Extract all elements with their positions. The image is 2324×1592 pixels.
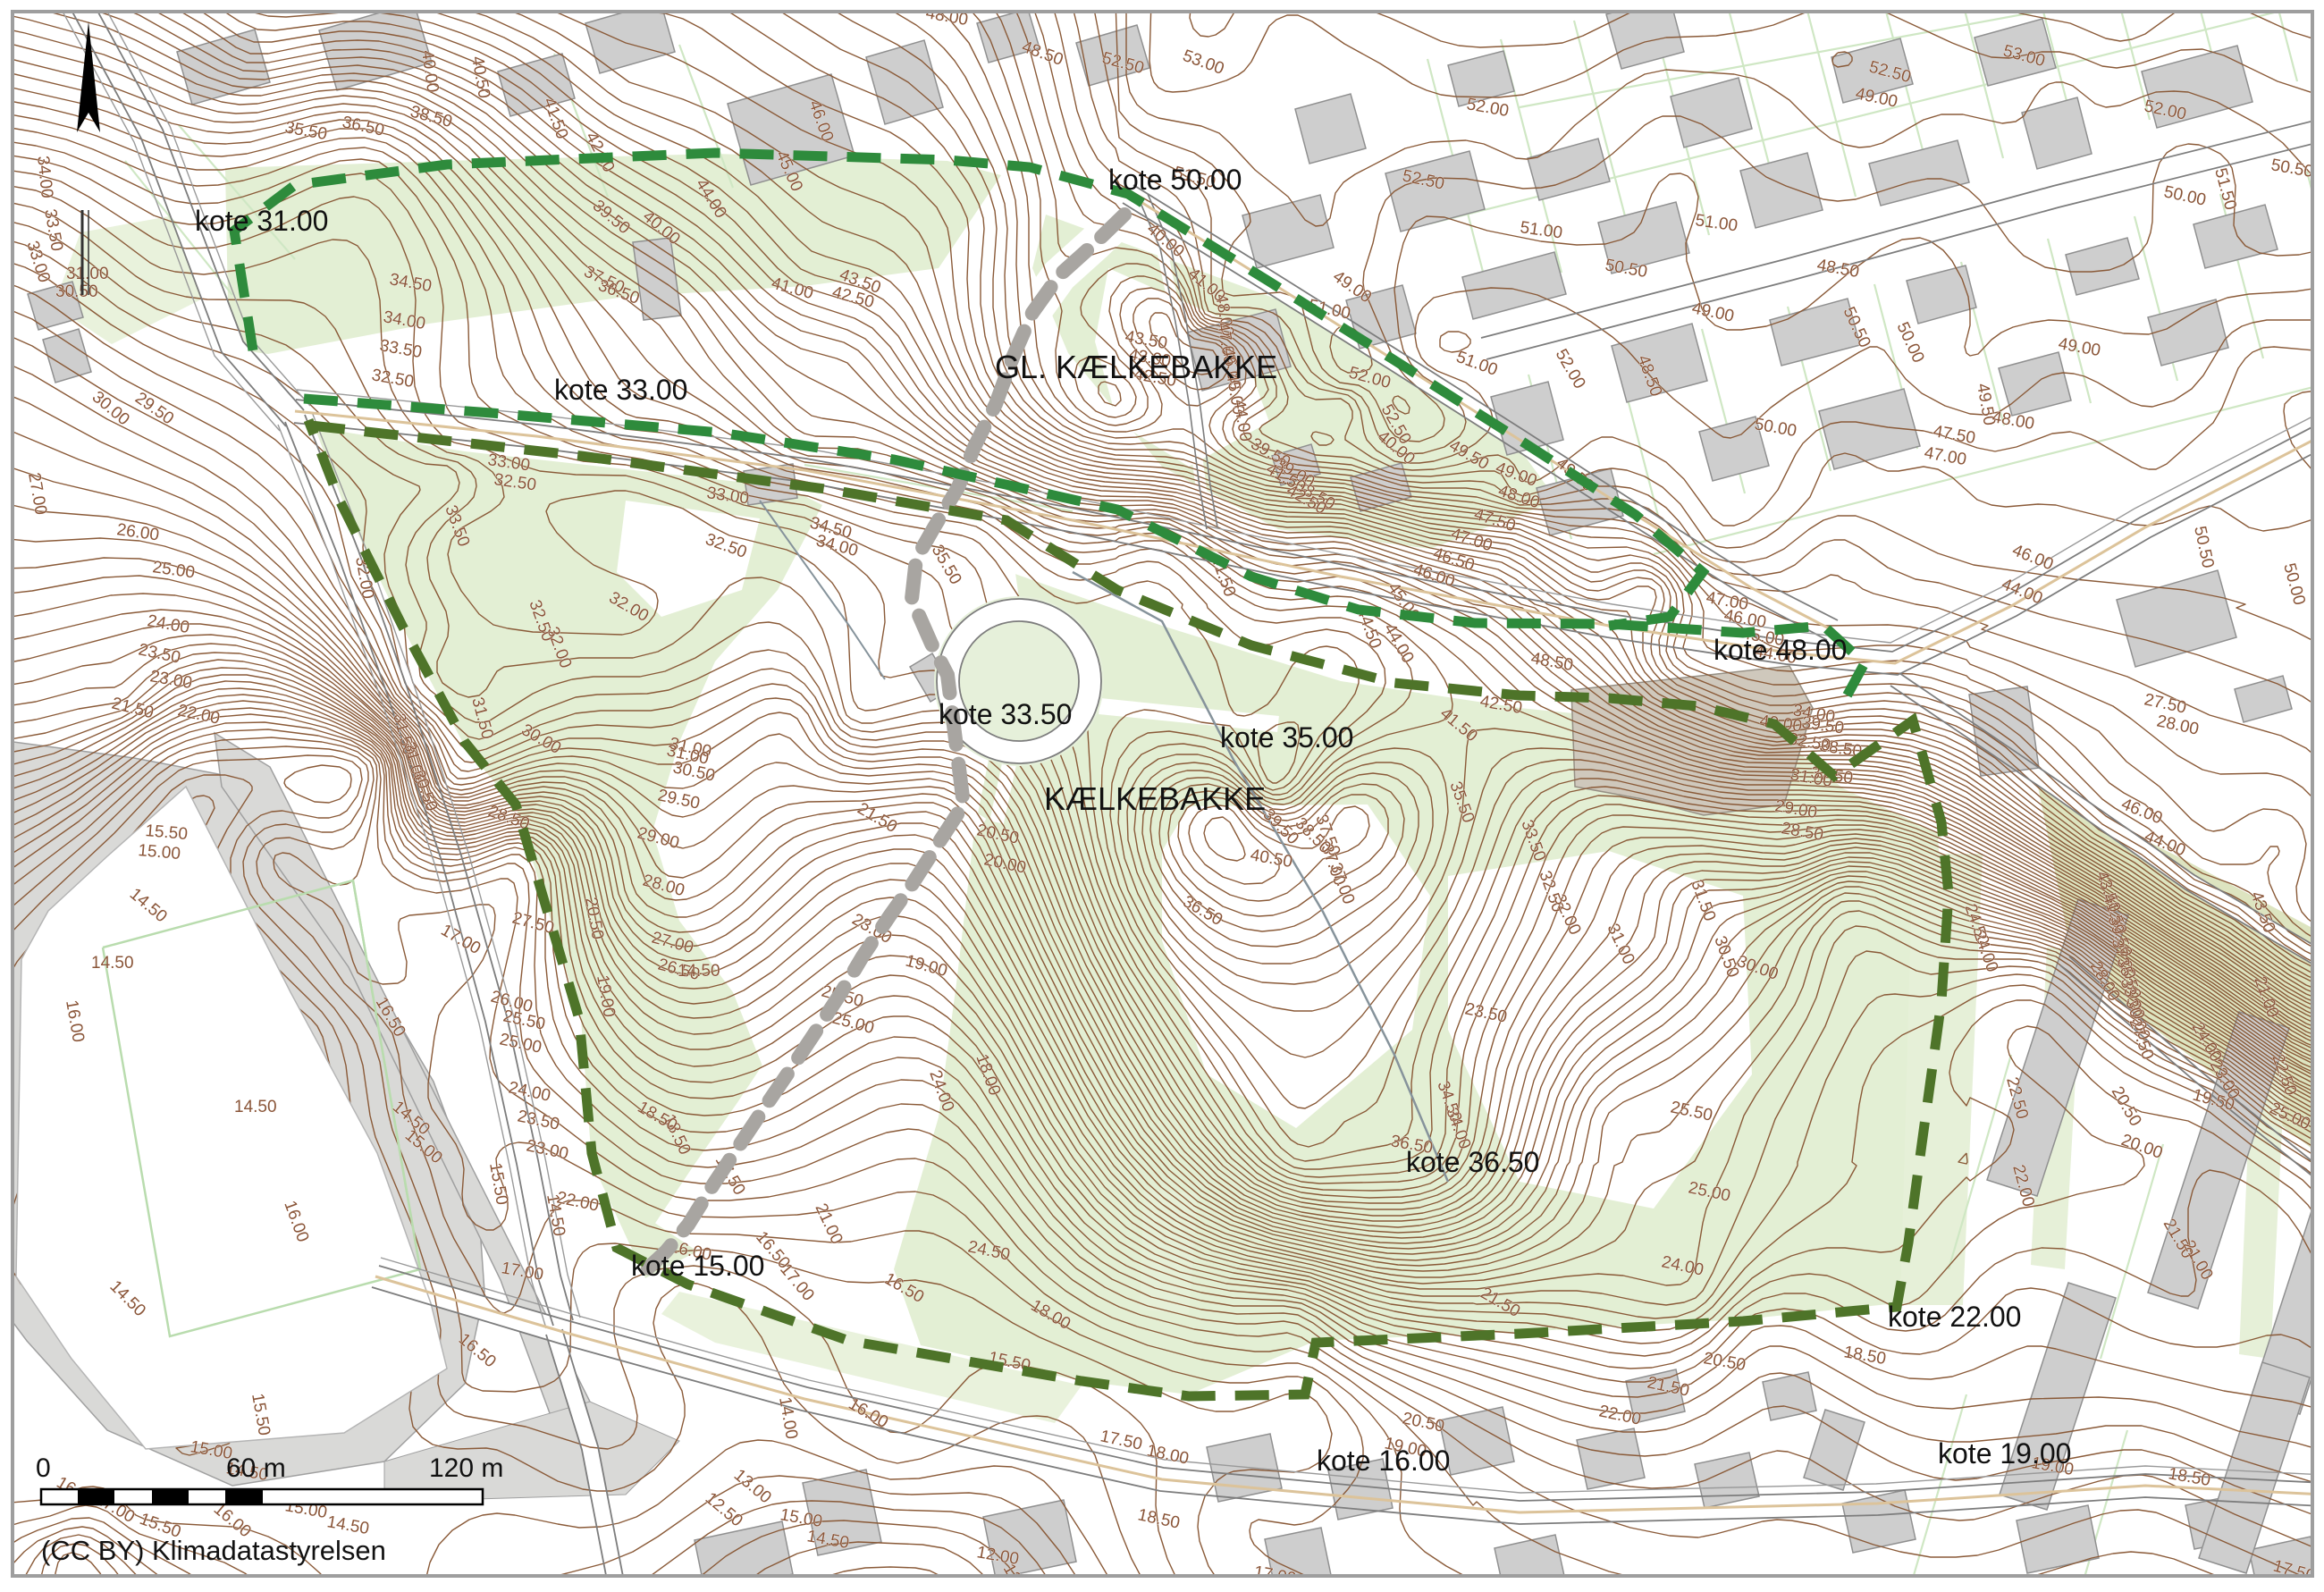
svg-text:15.50: 15.50 <box>145 821 189 844</box>
svg-text:14.50: 14.50 <box>678 962 720 981</box>
svg-text:kote 48.00: kote 48.00 <box>1714 634 1847 666</box>
svg-text:kote 33.00: kote 33.00 <box>554 374 687 406</box>
svg-text:kote 16.00: kote 16.00 <box>1317 1445 1450 1477</box>
svg-text:60 m: 60 m <box>226 1453 286 1483</box>
svg-text:kote 36.50: kote 36.50 <box>1406 1146 1539 1178</box>
svg-text:30.50: 30.50 <box>55 282 98 301</box>
svg-text:kote 31.00: kote 31.00 <box>195 205 328 237</box>
svg-text:KÆLKEBAKKE: KÆLKEBAKKE <box>1044 780 1266 817</box>
svg-text:0: 0 <box>36 1453 51 1483</box>
svg-text:kote 50.00: kote 50.00 <box>1108 164 1242 196</box>
svg-text:(CC BY) Klimadatastyrelsen: (CC BY) Klimadatastyrelsen <box>41 1535 386 1566</box>
svg-text:31.00: 31.00 <box>66 265 109 283</box>
svg-text:15.00: 15.00 <box>138 841 181 863</box>
svg-text:kote 15.00: kote 15.00 <box>631 1250 764 1282</box>
svg-text:GL. KÆLKEBAKKE: GL. KÆLKEBAKKE <box>995 349 1277 385</box>
svg-text:kote 19.00: kote 19.00 <box>1938 1437 2071 1470</box>
svg-text:14.50: 14.50 <box>91 954 134 973</box>
svg-text:120 m: 120 m <box>429 1453 503 1483</box>
svg-text:kote 22.00: kote 22.00 <box>1888 1301 2021 1333</box>
svg-text:kote 33.50: kote 33.50 <box>939 698 1072 730</box>
svg-text:kote 35.00: kote 35.00 <box>1220 721 1353 754</box>
svg-text:14.50: 14.50 <box>234 1098 277 1116</box>
